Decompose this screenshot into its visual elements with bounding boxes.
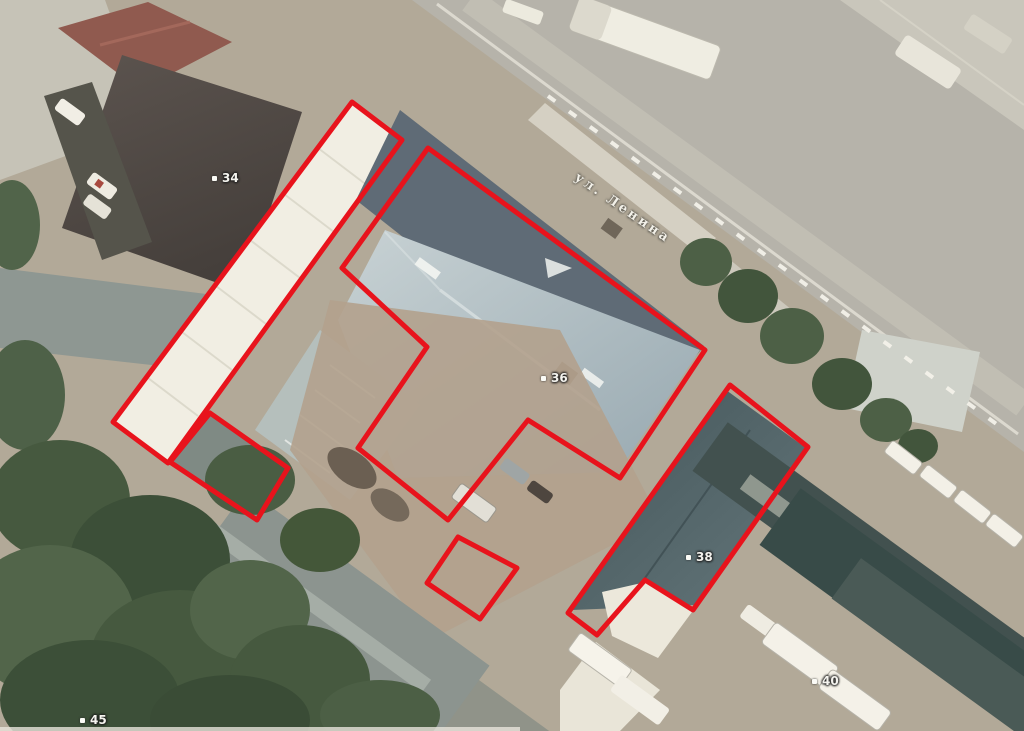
parcel-outline-small-west[interactable] (170, 413, 288, 520)
parcel-outline-east[interactable] (568, 385, 808, 635)
parcel-overlay (0, 0, 1024, 731)
parcel-outline-central[interactable] (342, 148, 705, 520)
satellite-map[interactable]: ул. Ленина 34 36 38 40 45 (0, 0, 1024, 731)
parcel-outline-small-square[interactable] (427, 537, 517, 619)
